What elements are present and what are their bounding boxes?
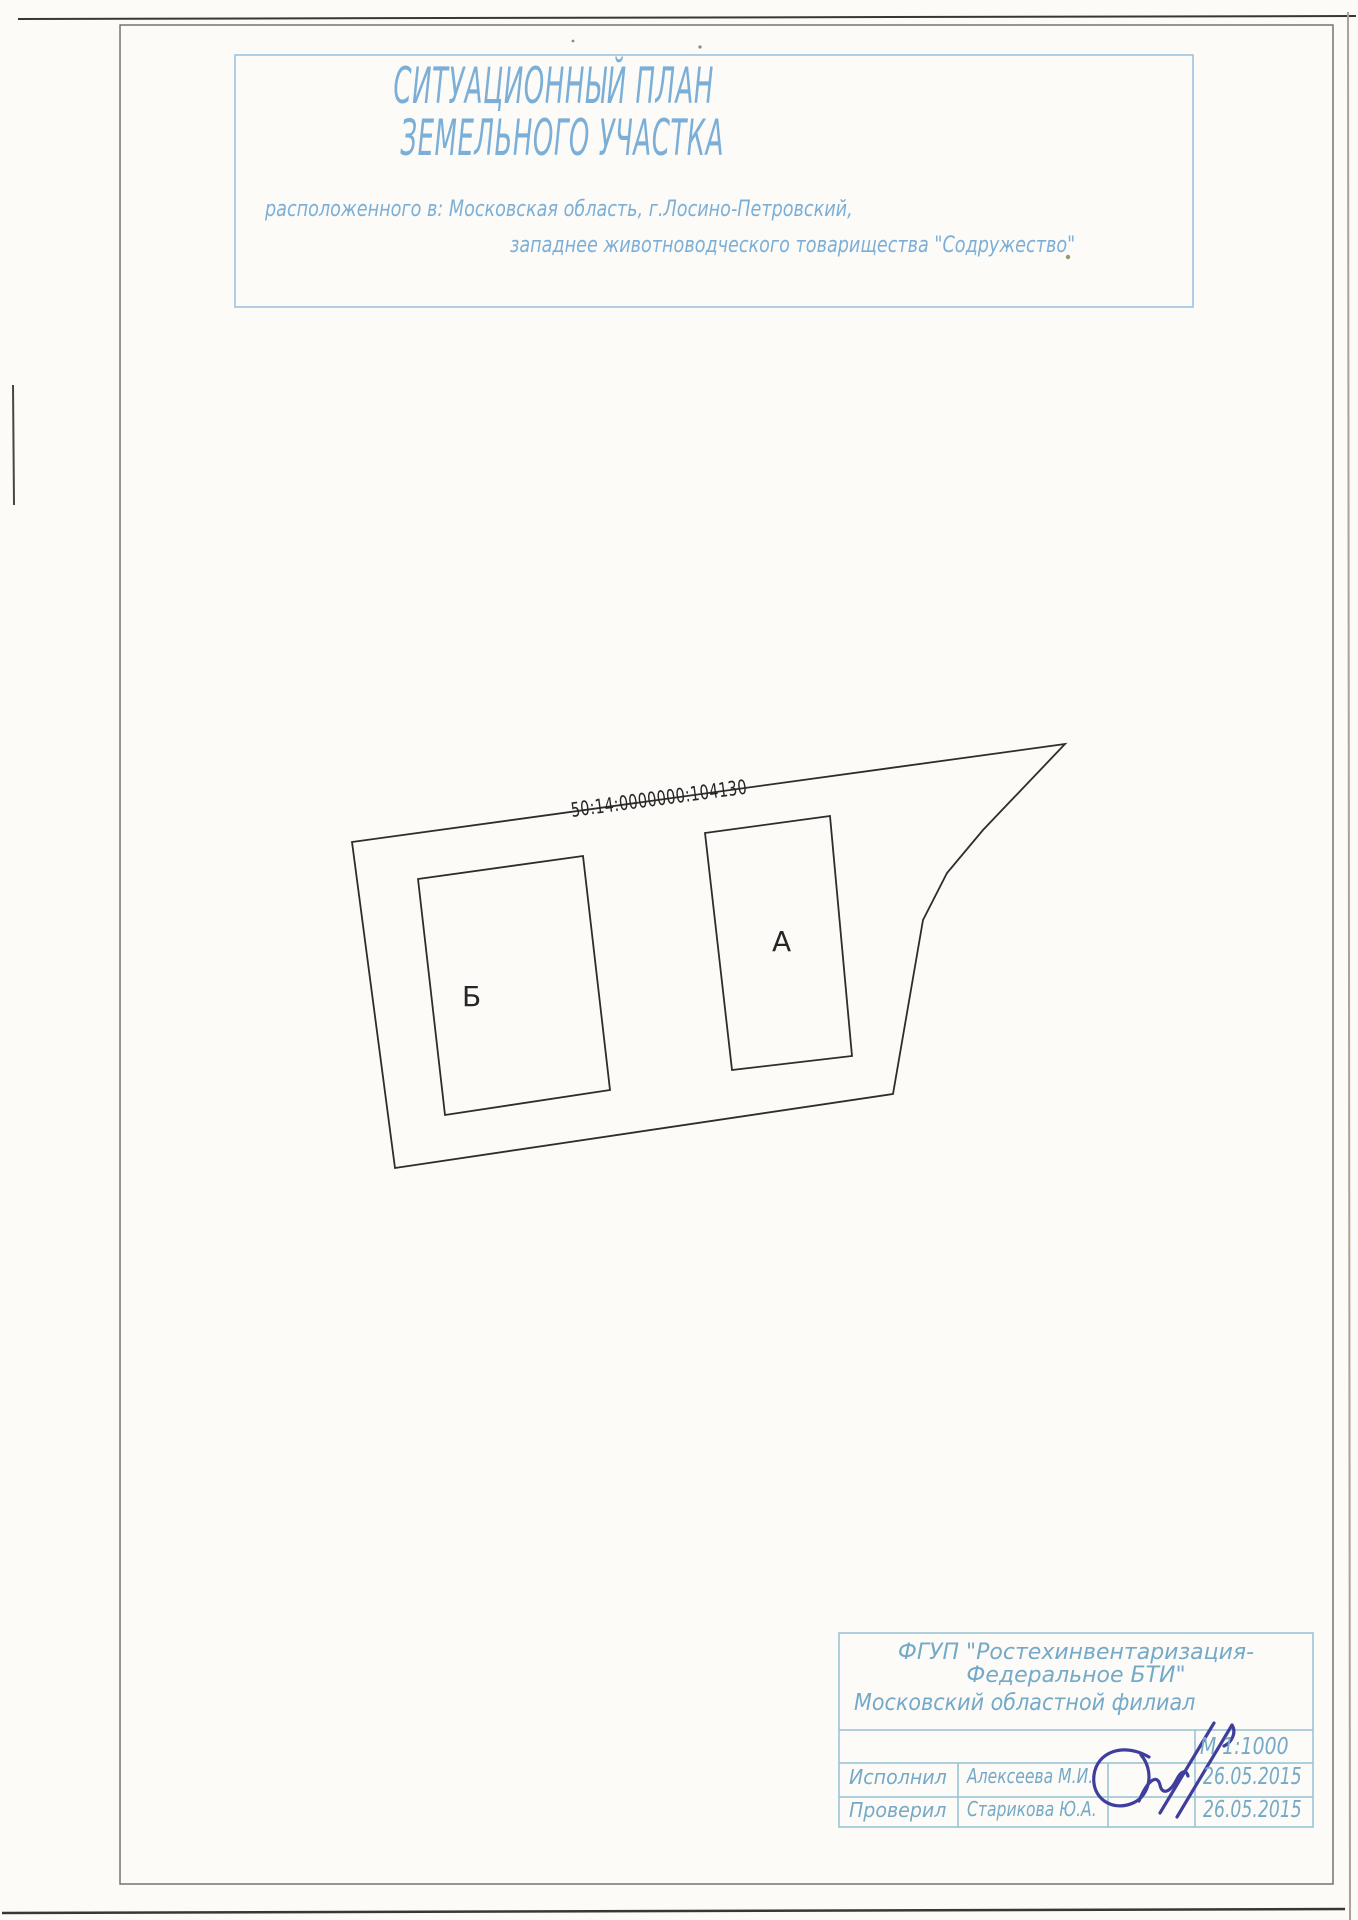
building-a-label: А [772,926,791,958]
stamp-org-line2: Федеральное БТИ" [839,1663,1313,1688]
location-line2: западнее животноводческого товарищества … [510,233,1075,258]
stamp-branch: Московский областной филиал [854,1690,1195,1716]
building-b-label: Б [462,981,481,1013]
stamp-row2-name: Старикова Ю.А. [967,1798,1097,1821]
scanned-document-page: СИТУАЦИОННЫЙ ПЛАН ЗЕМЕЛЬНОГО УЧАСТКА рас… [0,0,1358,1920]
scan-artifact-left [13,385,14,505]
stamp-row2-date: 26.05.2015 [1203,1797,1302,1823]
stamp-row2-role: Проверил [849,1799,946,1822]
scan-edge-top [18,16,1356,19]
page-frame [120,25,1333,1884]
location-line1: расположенного в: Московская область, г.… [265,197,853,222]
scan-speck-3 [572,40,575,43]
scan-speck-2 [698,45,701,48]
scan-edge-right [1348,12,1350,1920]
building-b-outline [418,856,610,1115]
document-title-line1: СИТУАЦИОННЫЙ ПЛАН [393,58,632,116]
stamp-row1-name: Алексеева М.И. [967,1765,1093,1788]
drawing-layer [0,0,1358,1920]
scan-edge-bottom [2,1909,1345,1913]
stamp-org-line1: ФГУП "Ростехинвентаризация- [839,1640,1313,1665]
stamp-row1-date: 26.05.2015 [1203,1764,1302,1790]
stamp-row1-role: Исполнил [849,1766,947,1789]
land-parcel-outline [352,744,1065,1168]
stamp-scale: М 1:1000 [1200,1734,1289,1760]
document-title-line2: ЗЕМЕЛЬНОГО УЧАСТКА [400,110,639,168]
